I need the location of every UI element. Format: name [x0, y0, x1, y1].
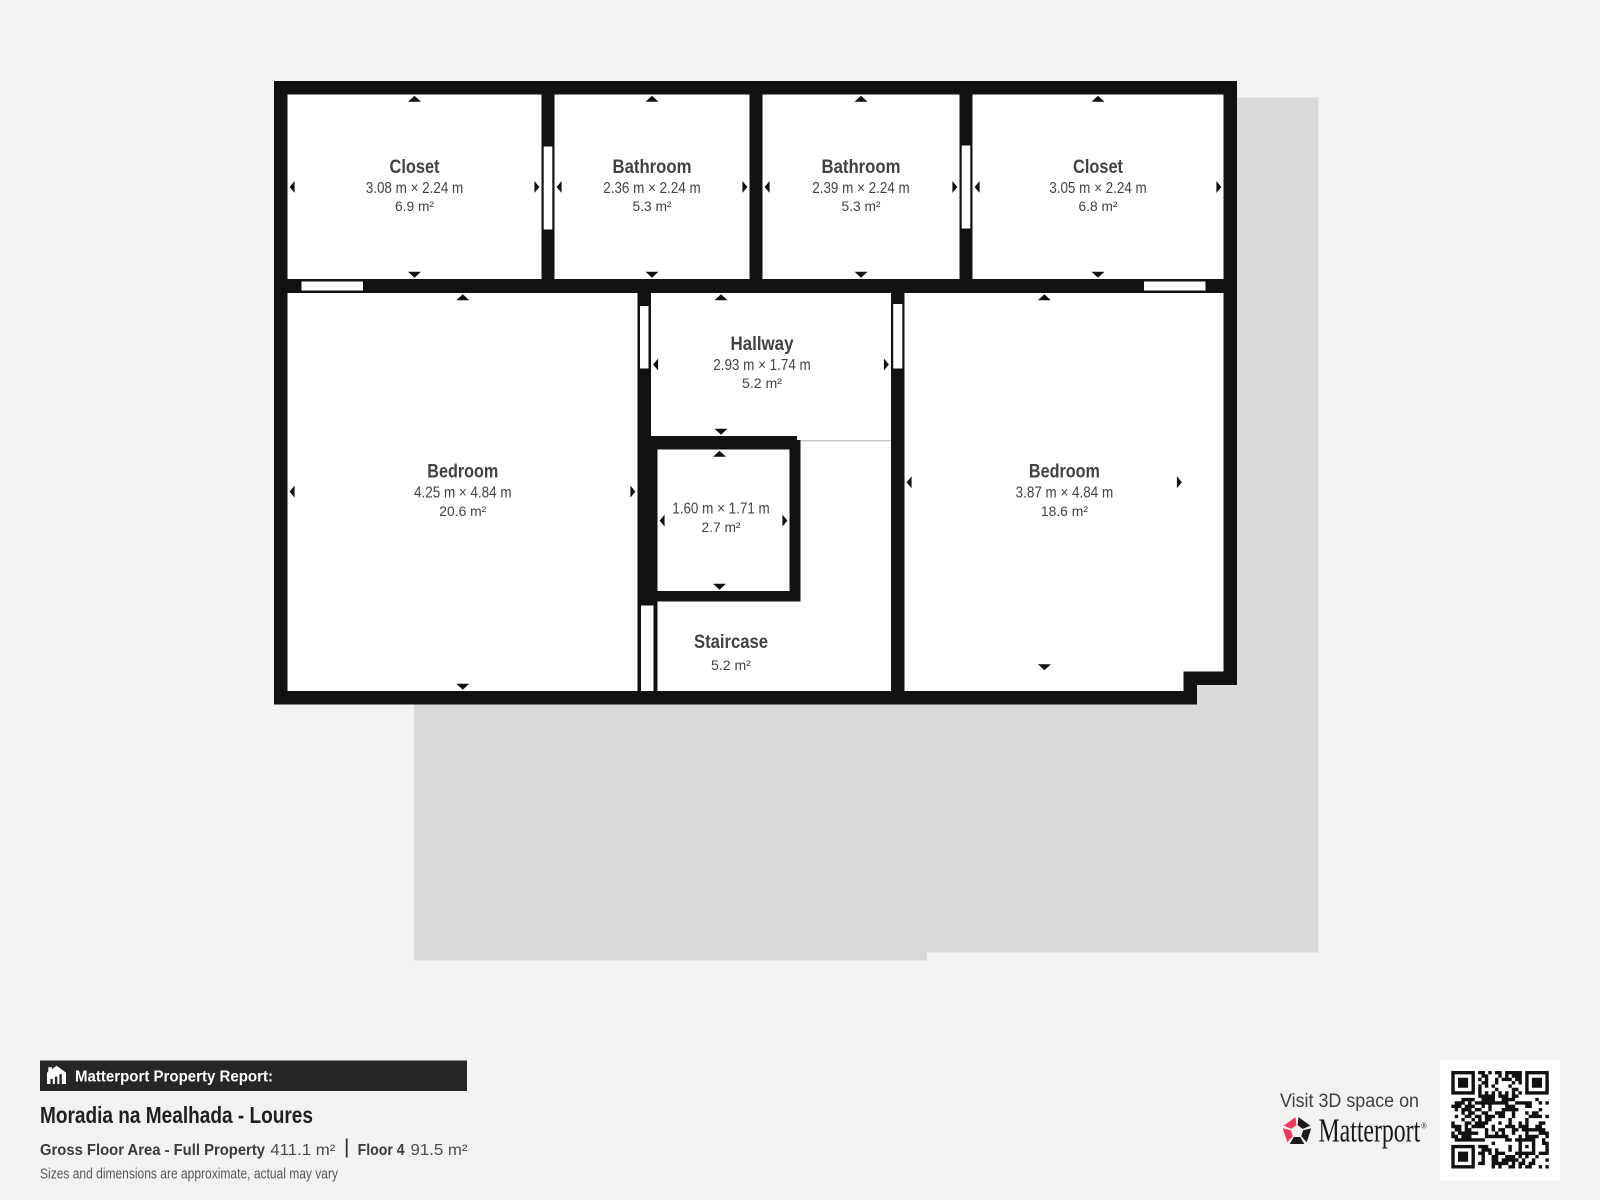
svg-text:20.6 m²: 20.6 m² — [439, 503, 486, 519]
svg-text:Matterport Property Report:: Matterport Property Report: — [75, 1068, 273, 1085]
svg-text:Gross Floor Area - Full Proper: Gross Floor Area - Full Property — [40, 1142, 265, 1159]
svg-text:Hallway: Hallway — [731, 334, 794, 355]
svg-text:18.6 m²: 18.6 m² — [1041, 503, 1088, 519]
svg-text:5.3 m²: 5.3 m² — [842, 198, 881, 214]
svg-text:6.8 m²: 6.8 m² — [1079, 198, 1118, 214]
svg-text:®: ® — [1421, 1122, 1427, 1131]
svg-text:3.05 m × 2.24 m: 3.05 m × 2.24 m — [1049, 180, 1147, 197]
svg-text:Moradia na Mealhada - Loures: Moradia na Mealhada - Loures — [40, 1102, 313, 1128]
svg-text:6.9 m²: 6.9 m² — [395, 198, 434, 214]
svg-text:Closet: Closet — [390, 157, 441, 178]
svg-text:91.5 m²: 91.5 m² — [411, 1142, 468, 1159]
svg-text:Bathroom: Bathroom — [613, 157, 692, 178]
svg-text:3.87 m × 4.84 m: 3.87 m × 4.84 m — [1016, 485, 1114, 502]
svg-text:5.2 m²: 5.2 m² — [711, 657, 751, 673]
svg-text:Bedroom: Bedroom — [427, 461, 498, 482]
svg-text:2.39 m × 2.24 m: 2.39 m × 2.24 m — [812, 180, 910, 197]
svg-text:5.2 m²: 5.2 m² — [742, 375, 782, 391]
svg-text:2.93 m × 1.74 m: 2.93 m × 1.74 m — [713, 357, 811, 374]
svg-text:411.1 m²: 411.1 m² — [270, 1142, 335, 1159]
svg-text:Staircase: Staircase — [694, 632, 768, 653]
svg-text:5.3 m²: 5.3 m² — [633, 198, 672, 214]
svg-text:Floor 4: Floor 4 — [358, 1142, 405, 1159]
svg-text:2.36 m × 2.24 m: 2.36 m × 2.24 m — [603, 180, 701, 197]
svg-text:Visit 3D space on: Visit 3D space on — [1280, 1090, 1419, 1112]
svg-text:2.7 m²: 2.7 m² — [702, 519, 741, 535]
svg-text:Sizes and dimensions are appro: Sizes and dimensions are approximate, ac… — [40, 1167, 339, 1183]
svg-text:Bedroom: Bedroom — [1029, 461, 1100, 482]
svg-text:Closet: Closet — [1073, 157, 1124, 178]
svg-text:Bathroom: Bathroom — [822, 157, 901, 178]
svg-text:3.08 m × 2.24 m: 3.08 m × 2.24 m — [366, 180, 464, 197]
svg-text:1.60 m × 1.71 m: 1.60 m × 1.71 m — [672, 501, 770, 518]
svg-text:4.25 m × 4.84 m: 4.25 m × 4.84 m — [414, 485, 512, 502]
svg-text:Matterport: Matterport — [1319, 1113, 1421, 1150]
